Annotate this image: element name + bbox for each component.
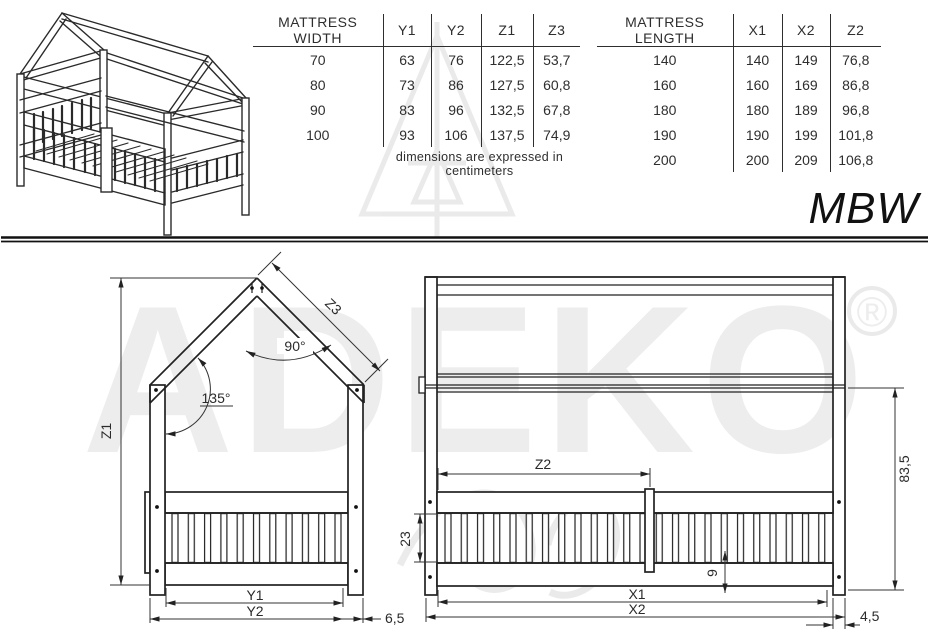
table-row: 190 190 199 101,8	[597, 122, 881, 147]
header-divider-line	[1, 238, 928, 242]
dim-label-z1: Z1	[98, 423, 114, 440]
cell: 93	[383, 122, 431, 147]
cell: 53,7	[533, 47, 580, 73]
cell: 140	[597, 47, 733, 73]
table-row: 90 83 96 132,5 67,8	[253, 97, 580, 122]
technical-drawing-sheet: { "tables": { "width": { "headers": ["MA…	[0, 0, 930, 640]
cell: 76,8	[830, 47, 881, 73]
dimensions-note: dimensions are expressed in centimeters	[372, 150, 587, 178]
mattress-width-table: MATTRESS WIDTH Y1 Y2 Z1 Z3 70 63 76 122,…	[253, 14, 580, 147]
angle-label-90: 90°	[284, 338, 305, 354]
table-header-row: MATTRESS LENGTH X1 X2 Z2	[597, 14, 881, 47]
column-header: X2	[782, 14, 830, 47]
dim-label-z2: Z2	[535, 456, 552, 472]
cell: 190	[597, 122, 733, 147]
cell: 96	[431, 97, 481, 122]
mattress-length-table: MATTRESS LENGTH X1 X2 Z2 140 140 149 76,…	[597, 14, 881, 172]
gate-divider-3d	[101, 128, 112, 192]
cell: 127,5	[481, 72, 533, 97]
cell: 60,8	[533, 72, 580, 97]
dim-label-y2: Y2	[246, 603, 263, 619]
cell: 140	[733, 47, 782, 73]
cell: 90	[253, 97, 383, 122]
bed-3d-thumbnail	[17, 13, 249, 235]
left-post	[150, 385, 165, 595]
cell: 137,5	[481, 122, 533, 147]
cell: 67,8	[533, 97, 580, 122]
cell: 160	[733, 72, 782, 97]
table-row: 100 93 106 137,5 74,9	[253, 122, 580, 147]
table-row: 200 200 209 106,8	[597, 147, 881, 172]
cell: 76	[431, 47, 481, 73]
cell: 180	[733, 97, 782, 122]
cell: 86,8	[830, 72, 881, 97]
angle-label-135: 135°	[202, 390, 231, 406]
cell: 180	[597, 97, 733, 122]
cell: 209	[782, 147, 830, 172]
cell: 96,8	[830, 97, 881, 122]
cell: 80	[253, 72, 383, 97]
column-header: X1	[733, 14, 782, 47]
dim-label-9: 9	[704, 569, 720, 577]
cell: 149	[782, 47, 830, 73]
cell: 106	[431, 122, 481, 147]
cell: 160	[597, 72, 733, 97]
cell: 73	[383, 72, 431, 97]
column-header: Z2	[830, 14, 881, 47]
table-row: 180 180 189 96,8	[597, 97, 881, 122]
dim-label-4-5: 4,5	[860, 608, 880, 624]
gate-divider	[645, 489, 654, 572]
table-row: 70 63 76 122,5 53,7	[253, 47, 580, 73]
cell: 132,5	[481, 97, 533, 122]
cell: 122,5	[481, 47, 533, 73]
table-row: 80 73 86 127,5 60,8	[253, 72, 580, 97]
cell: 86	[431, 72, 481, 97]
cell: 74,9	[533, 122, 580, 147]
cell: 63	[383, 47, 431, 73]
dim-label-6-5: 6,5	[385, 610, 405, 626]
model-name-label: MBW	[808, 184, 919, 234]
watermark-registered-text: ®	[857, 288, 888, 335]
cell: 190	[733, 122, 782, 147]
head-post	[425, 277, 437, 595]
cell: 200	[597, 147, 733, 172]
cell: 199	[782, 122, 830, 147]
dim-label-x2: X2	[628, 601, 645, 617]
right-post	[348, 385, 363, 595]
column-header: Z3	[533, 14, 580, 47]
table-header-row: MATTRESS WIDTH Y1 Y2 Z1 Z3	[253, 14, 580, 47]
column-header: MATTRESS WIDTH	[253, 14, 383, 47]
foot-post	[833, 277, 845, 595]
watermark-brand-text: ADEKO	[82, 262, 870, 497]
cell: 169	[782, 72, 830, 97]
column-header: Y1	[383, 14, 431, 47]
cell: 83	[383, 97, 431, 122]
cell: 106,8	[830, 147, 881, 172]
dim-label-y1: Y1	[246, 587, 263, 603]
column-header: Y2	[431, 14, 481, 47]
column-header: MATTRESS LENGTH	[597, 14, 733, 47]
cell: 200	[733, 147, 782, 172]
cell: 101,8	[830, 122, 881, 147]
column-header: Z1	[481, 14, 533, 47]
cell: 70	[253, 47, 383, 73]
front-slats	[167, 513, 346, 563]
dim-label-23: 23	[397, 531, 413, 547]
dim-label-x1: X1	[628, 586, 645, 602]
cell: 100	[253, 122, 383, 147]
dim-label-83-5: 83,5	[896, 455, 912, 482]
table-row: 160 160 169 86,8	[597, 72, 881, 97]
table-row: 140 140 149 76,8	[597, 47, 881, 73]
side-slats	[440, 513, 830, 563]
cell: 189	[782, 97, 830, 122]
